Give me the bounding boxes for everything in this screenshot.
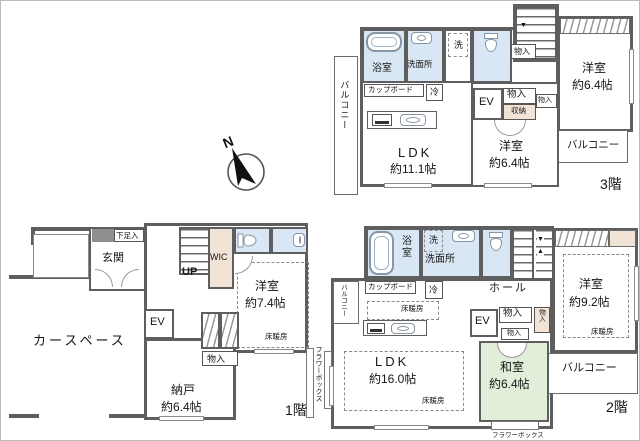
floor3-washroom-label: 洗面所 — [407, 60, 433, 70]
floor3-closet-hatch — [560, 18, 630, 34]
floor2-bath-label: 浴室 — [399, 235, 411, 275]
floor1-up-label: UP — [182, 266, 197, 279]
floor1-carspace-label: カースペース — [33, 334, 127, 349]
floor2-ldk-label: LDK — [375, 355, 409, 370]
floor2-hall-label: ホール — [489, 282, 528, 295]
floor2-fridge-label: 冷 — [429, 285, 438, 295]
floor1-monoire-label: 物入 — [207, 354, 225, 364]
floor3-window-room-center — [484, 183, 532, 188]
floor2-closet-hatch — [555, 230, 609, 247]
floor1-wall-stub-top — [31, 227, 93, 231]
floor3-window-room-right — [629, 49, 634, 104]
floor2-window-ldk-left — [329, 366, 334, 406]
floor2-stove-icon — [367, 323, 385, 334]
floor3-window-ldk — [384, 183, 432, 188]
floor2-room-label: 洋室 — [579, 278, 603, 292]
floor2-bay-window — [491, 421, 539, 430]
floor2-balcony-right-label: バルコニー — [562, 362, 617, 375]
floor2-flowerbox-label: フラワーボックス — [492, 432, 544, 439]
floor1-carspace-bottom-wall-left — [9, 414, 39, 418]
floor3-room-center-label: 洋室 — [499, 140, 523, 154]
floor1-window-room — [254, 349, 294, 354]
floor3-monoire-a-label: 物入 — [507, 90, 526, 101]
floor2-closet-cell — [609, 230, 636, 247]
floor3-bath-label: 浴室 — [372, 63, 392, 75]
floor3-plan: バルコニー 浴室 洗面所 洗 ▼ 物入 カップボード 冷 LDK 約11.1帖 — [334, 4, 640, 196]
floor1-washroom2-sink-icon — [293, 233, 305, 247]
floor3-label: 3階 — [600, 176, 622, 192]
floor2-washitsu-size-label: 約6.4帖 — [489, 378, 530, 392]
floor1-nando-size-label: 約6.4帖 — [161, 401, 202, 415]
floor2-kitchen-heating-label: 床暖房 — [401, 305, 424, 314]
floor2-stairs-arrow-down: ▼ — [537, 236, 544, 244]
floor3-balcony-left-label: バルコニー — [339, 80, 349, 175]
floor3-fridge-label: 冷 — [430, 87, 439, 97]
floor3-ldk-label: LDK — [398, 146, 432, 161]
floor3-washer-label: 洗 — [454, 40, 463, 50]
floor3-sink-icon — [411, 32, 432, 44]
floor2-window-ldk — [374, 425, 429, 430]
floor1-closet-cell-1 — [201, 312, 220, 349]
floor1-shoe-cabinet — [92, 229, 114, 242]
floor3-kitchen-sink-icon — [400, 114, 426, 126]
floor2-stairs-rail — [532, 230, 536, 278]
floor2-sink-icon — [452, 230, 475, 242]
floor2-ldk-heating-label: 床暖房 — [422, 397, 445, 406]
floor1-room-heating-label: 床暖房 — [265, 333, 288, 342]
floor2-bathtub-icon — [369, 231, 394, 275]
floor3-cupboard-label: カップボード — [368, 86, 413, 95]
floor3-balcony-right-label: バルコニー — [567, 139, 619, 151]
floorplan-image: N バルコニー 浴室 洗面所 洗 ▼ 物入 カップボード 冷 — [0, 0, 640, 441]
floor2-washitsu-label: 和室 — [500, 361, 524, 375]
floor3-toilet-icon — [484, 33, 498, 52]
floor1-toilet-icon — [238, 234, 257, 248]
floor2-stairs-arrow-up: ▲ — [537, 248, 544, 256]
floor1-closet-cell-2 — [220, 312, 239, 349]
floor3-monoire-b-label: 物入 — [538, 97, 552, 105]
floor2-monoire-b-label: 物入 — [507, 330, 521, 338]
floor2-kitchen-sink-icon — [391, 323, 415, 334]
floor1-shoe-label: 下足入 — [116, 232, 139, 241]
floor3-room-center-size-label: 約6.4帖 — [489, 157, 530, 171]
floor2-window-room-right — [634, 266, 639, 321]
floor1-wic-label: WIC — [210, 252, 228, 262]
floor1-flowerbox-shape — [306, 348, 314, 418]
compass: N — [215, 134, 271, 196]
floor3-shuno-label: 収納 — [511, 107, 526, 116]
floor2-monoire-a-label: 物入 — [503, 309, 522, 320]
floor2-room-size-label: 約9.2帖 — [569, 296, 610, 310]
floor3-bathtub-icon — [366, 32, 402, 52]
floor1-room-label: 洋室 — [255, 280, 279, 294]
floor1-window-nando — [159, 416, 204, 421]
floor1-label: 1階 — [285, 402, 307, 418]
floor3-stairs-arrow: ▼ — [520, 22, 527, 30]
floor2-ev-label: EV — [475, 315, 490, 328]
floor2-ldk-size-label: 約16.0帖 — [369, 373, 416, 387]
floor2-washroom-label: 洗面所 — [425, 254, 455, 266]
floor3-monoire-top-label: 物入 — [514, 47, 530, 56]
floor1-plan: カースペース 下足入 玄関 UP WIC 洋室 約7.4帖 床暖房 EV — [9, 214, 323, 441]
floor3-ev-label: EV — [479, 96, 494, 109]
floor2-monoire-c-label: 物入 — [537, 309, 544, 331]
floor1-ev-label: EV — [150, 316, 165, 329]
floor3-stove-icon — [372, 114, 392, 126]
floor2-label: 2階 — [606, 399, 628, 415]
floor3-room-right-label: 洋室 — [582, 62, 606, 76]
floor3-room-right-size-label: 約6.4帖 — [572, 79, 613, 93]
floor3-ldk-size-label: 約11.1帖 — [390, 163, 436, 177]
floor1-nando-label: 納戸 — [171, 384, 195, 398]
floor2-balcony-left-label: バルコニー — [339, 284, 346, 322]
floor1-entrance-label: 玄関 — [102, 252, 124, 265]
floor2-cupboard-label: カップボード — [368, 283, 413, 292]
floor2-room-heating-label: 床暖房 — [591, 328, 614, 337]
floor2-plan: 浴室 洗 洗面所 ▼ ▲ ホール カップボード 冷 バルコニー 床暖房 LDK … — [319, 216, 640, 441]
floor1-room-size-label: 約7.4帖 — [245, 297, 286, 311]
floor2-washer-label: 洗 — [429, 235, 438, 245]
floor1-porch — [33, 234, 89, 278]
floor2-toilet-icon — [489, 232, 503, 251]
